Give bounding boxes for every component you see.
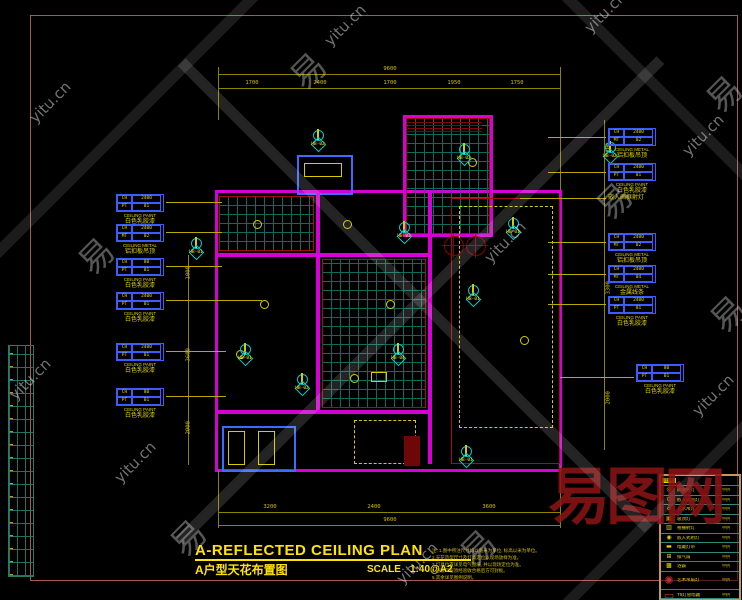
dim-label: 1000	[186, 256, 192, 290]
interior-wall	[428, 192, 432, 464]
downlight-icon	[386, 300, 395, 309]
balcony-light-fixture	[304, 163, 342, 177]
material-name-cn: 铝扣板吊顶	[116, 249, 164, 256]
material-label: CH80PT01 CEILING PAINT 白色乳胶漆	[636, 364, 684, 396]
tag-cell: 2400	[624, 297, 653, 305]
tag-cell: MT	[609, 242, 624, 250]
ceiling-plan-sheet: 9600 1700 2400 1700 1950 1750 3200 2400 …	[0, 0, 742, 600]
material-name-cn: 白色乳胶漆	[116, 317, 164, 324]
tag-cell: PT	[117, 397, 132, 405]
material-tag: CH2400MT02	[116, 224, 164, 242]
dim-label: 9600	[373, 67, 407, 73]
material-tag: CH2400PT01	[116, 343, 164, 361]
material-tag: CH2400MT02	[608, 233, 656, 251]
material-label: CH2400MT02 CEILING METAL 铝扣板吊顶	[608, 128, 656, 160]
dim-label: 2400	[357, 505, 391, 511]
drawing-title-en: A-REFLECTED CEILING PLAN	[195, 543, 423, 558]
tag-cell: CH	[609, 164, 624, 172]
leader-line	[548, 172, 606, 173]
material-name-cn: 白色乳胶漆	[636, 389, 684, 396]
dim-label: 2000	[186, 411, 192, 445]
finish-callout: HB-01	[465, 285, 481, 305]
bath-heater-icon: ▩	[661, 563, 677, 569]
material-tag: CH2400PT01	[116, 292, 164, 310]
tag-cell: 2400	[132, 293, 161, 301]
legend-row: ✺艺术吊扇灯甲供	[661, 572, 739, 590]
tag-cell: 01	[132, 301, 161, 309]
interior-wall	[215, 253, 432, 257]
note-line: 5.其余详见图例说明。	[432, 575, 476, 580]
exhaust-fan-icon: ⊞	[661, 554, 677, 560]
tag-cell: CH	[117, 195, 132, 203]
callout-code: HB-01	[230, 357, 260, 362]
tag-cell: MT	[609, 274, 624, 282]
material-name-cn: 白色乳胶漆	[116, 413, 164, 420]
dim-label: 1950	[437, 81, 471, 87]
wall-hatch	[408, 120, 482, 132]
t5-tube-icon: ▭	[661, 590, 677, 600]
tag-cell: CH	[609, 266, 624, 274]
tag-cell: 01	[624, 305, 653, 313]
callout-code: HB-04	[383, 357, 413, 362]
tag-cell: 2400	[624, 266, 653, 274]
material-label: CH2400PT01 CEILING PAINT 白色乳胶漆	[116, 292, 164, 324]
dim-label: 3600	[472, 505, 506, 511]
tag-cell: PT	[117, 203, 132, 211]
tag-cell: PT	[609, 305, 624, 313]
tag-cell: 2400	[624, 234, 653, 242]
tag-cell: 80	[132, 259, 161, 267]
tag-cell: PT	[117, 267, 132, 275]
callout-code: HB-01	[458, 298, 488, 303]
finish-callout: HB-02	[456, 144, 472, 164]
material-tag: CH2400PT01	[116, 194, 164, 212]
tag-cell: CH	[117, 225, 132, 233]
interior-wall	[316, 192, 320, 414]
dim-label: 3200	[253, 505, 287, 511]
legend-row: ▬暗藏灯带甲供	[661, 543, 739, 553]
leader-line	[166, 300, 262, 301]
tag-cell: 01	[132, 352, 161, 360]
material-name-en: CEILING METAL	[608, 147, 656, 153]
material-name-cn: 白色乳胶漆	[608, 321, 656, 328]
dim-label: 1750	[500, 81, 534, 87]
material-label: CH2400PT01 CEILING PAINT 白色乳胶漆	[116, 343, 164, 375]
tag-cell: 2400	[132, 225, 161, 233]
fan-light-icon: ✺	[661, 575, 677, 586]
tag-cell: CH	[117, 389, 132, 397]
tag-cell: PT	[117, 352, 132, 360]
tag-cell: 04	[624, 274, 653, 282]
dim-label: 2000	[606, 381, 612, 415]
callout-code: HB-02	[449, 157, 479, 162]
tag-cell: MT	[117, 233, 132, 241]
leader-line	[548, 304, 606, 305]
interior-wall	[215, 410, 432, 414]
leader-line	[166, 232, 222, 233]
downlight-icon	[520, 336, 529, 345]
dim-line	[218, 512, 560, 513]
material-tag: CH2400MT02	[608, 128, 656, 146]
tag-cell: CH	[609, 297, 624, 305]
material-name-cn: 白色乳胶漆	[116, 368, 164, 375]
dim-line	[218, 74, 560, 75]
note-line: 4.隐蔽工程须经验收合格后方可封板。	[432, 568, 508, 573]
tag-cell: CH	[117, 293, 132, 301]
duct-block	[404, 436, 420, 466]
tag-cell: 01	[132, 203, 161, 211]
finish-callout: HB-01	[458, 446, 474, 466]
tag-cell: 80	[652, 365, 681, 373]
tag-cell: 02	[624, 242, 653, 250]
tag-cell: CH	[117, 344, 132, 352]
tag-cell: CH	[609, 129, 624, 137]
balcony-fixture	[228, 431, 245, 465]
callout-code: HB-02	[287, 387, 317, 392]
leader-line	[560, 377, 634, 378]
downlight-icon	[253, 220, 262, 229]
tag-cell: 01	[652, 373, 681, 381]
material-label: CH2400PT01 CEILING PAINT 白色乳胶漆	[116, 194, 164, 226]
downlight-icon	[260, 300, 269, 309]
corridor-ceiling-grid	[219, 196, 314, 251]
callout-code: HB-02	[303, 143, 333, 148]
tag-cell: 01	[624, 172, 653, 180]
leader-line	[548, 274, 606, 275]
legend-row: ▩浴霸甲供	[661, 562, 739, 572]
callout-code: HB-03	[389, 235, 419, 240]
tag-cell: 02	[624, 137, 653, 145]
tag-cell: 2400	[624, 164, 653, 172]
material-name-en: CEILING METAL	[608, 252, 656, 258]
leader-line	[166, 351, 226, 352]
tag-cell: CH	[637, 365, 652, 373]
material-tag: CH2400MT04	[608, 265, 656, 283]
tag-cell: 01	[132, 267, 161, 275]
material-tag: CH2400PT01	[608, 296, 656, 314]
dim-line	[218, 525, 560, 526]
tag-cell: 2400	[132, 195, 161, 203]
material-name-cn: 铝扣板吊顶	[608, 153, 656, 160]
material-label: CH2400MT02 CEILING METAL 铝扣板吊顶	[116, 224, 164, 256]
material-label: CH2400PT01 CEILING PAINT 白色乳胶漆	[608, 296, 656, 328]
tag-cell: MT	[609, 137, 624, 145]
leader-line	[548, 242, 606, 243]
tag-cell: CH	[609, 234, 624, 242]
tag-cell: 01	[132, 397, 161, 405]
finish-callout: HB-02	[294, 374, 310, 394]
finish-callout: HB-01	[188, 238, 204, 258]
material-tag: CH80PT01	[116, 388, 164, 406]
tag-cell: 80	[132, 389, 161, 397]
spotlight-icon: ◉	[661, 535, 677, 541]
material-label: CH80PT01 CEILING PAINT 白色乳胶漆	[116, 388, 164, 420]
finish-callout: HB-01	[237, 344, 253, 364]
material-label: CH80PT01 CEILING PAINT 白色乳胶漆	[116, 258, 164, 290]
finish-callout: HB-03	[396, 222, 412, 242]
material-label: CH2400MT02 CEILING METAL 铝扣板吊顶	[608, 233, 656, 265]
leader-line	[166, 396, 226, 397]
drawing-title-cn: A户型天花布置图	[195, 564, 288, 576]
callout-code: HB-01	[181, 251, 211, 256]
tag-cell: 2400	[624, 129, 653, 137]
tag-cell: 2400	[132, 344, 161, 352]
dim-line	[218, 88, 560, 89]
legend-row: ⊞排气扇甲供	[661, 553, 739, 563]
leader-line	[166, 266, 222, 267]
material-tag: CH80PT01	[116, 258, 164, 276]
dim-label: 1700	[373, 81, 407, 87]
legend-row: ◉嵌入式射灯甲供	[661, 534, 739, 544]
material-name-en: CEILING METAL	[116, 243, 164, 249]
tag-cell: PT	[117, 301, 132, 309]
dim-label: 9600	[373, 518, 407, 524]
light-fixture	[371, 372, 387, 382]
tag-cell: PT	[637, 373, 652, 381]
material-name-cn: 白色乳胶漆	[116, 283, 164, 290]
material-tag: CH80PT01	[636, 364, 684, 382]
dim-label: 3600	[186, 338, 192, 372]
legend-row: ▭T5灯管暗藏甲供	[661, 590, 739, 600]
cove-light-icon: ▬	[661, 544, 677, 550]
material-name-en: CEILING METAL	[608, 284, 656, 290]
leader-line	[166, 202, 222, 203]
material-label: CH2400MT04 CEILING METAL 金属线条	[608, 265, 656, 297]
finish-callout: HB-04	[390, 344, 406, 364]
finish-callout: HB-02	[310, 130, 326, 150]
dim-label: 1700	[235, 81, 269, 87]
callout-code: HB-01	[451, 459, 481, 464]
tag-cell: 02	[132, 233, 161, 241]
material-name-cn: 铝扣板吊顶	[608, 258, 656, 265]
